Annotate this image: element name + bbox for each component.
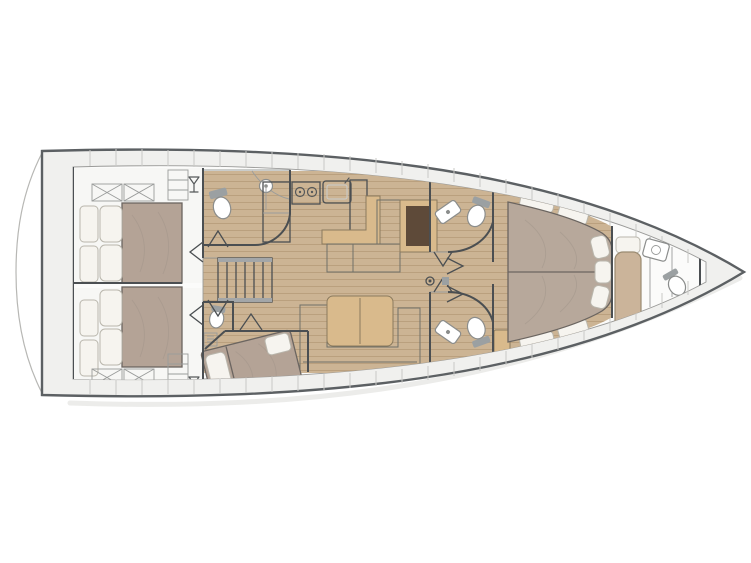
swim-platform — [16, 153, 42, 393]
pillow — [100, 206, 122, 242]
step-rail — [218, 258, 272, 262]
pillow — [100, 245, 122, 281]
double-bed — [122, 203, 182, 283]
double-bed — [122, 287, 182, 367]
shelf-cushion — [80, 300, 98, 336]
burner-center — [311, 191, 313, 193]
foot-cushion — [595, 261, 611, 283]
shelf-cushion — [80, 246, 98, 282]
yacht-floorplan-image — [0, 0, 751, 563]
pillow — [100, 329, 122, 365]
burner-center — [299, 191, 301, 193]
pillow — [100, 290, 122, 326]
chart-table — [406, 206, 431, 246]
pillow — [616, 237, 640, 253]
keel-fitting — [442, 277, 449, 285]
floorplan-svg — [0, 0, 751, 563]
shelf-cushion — [80, 206, 98, 242]
